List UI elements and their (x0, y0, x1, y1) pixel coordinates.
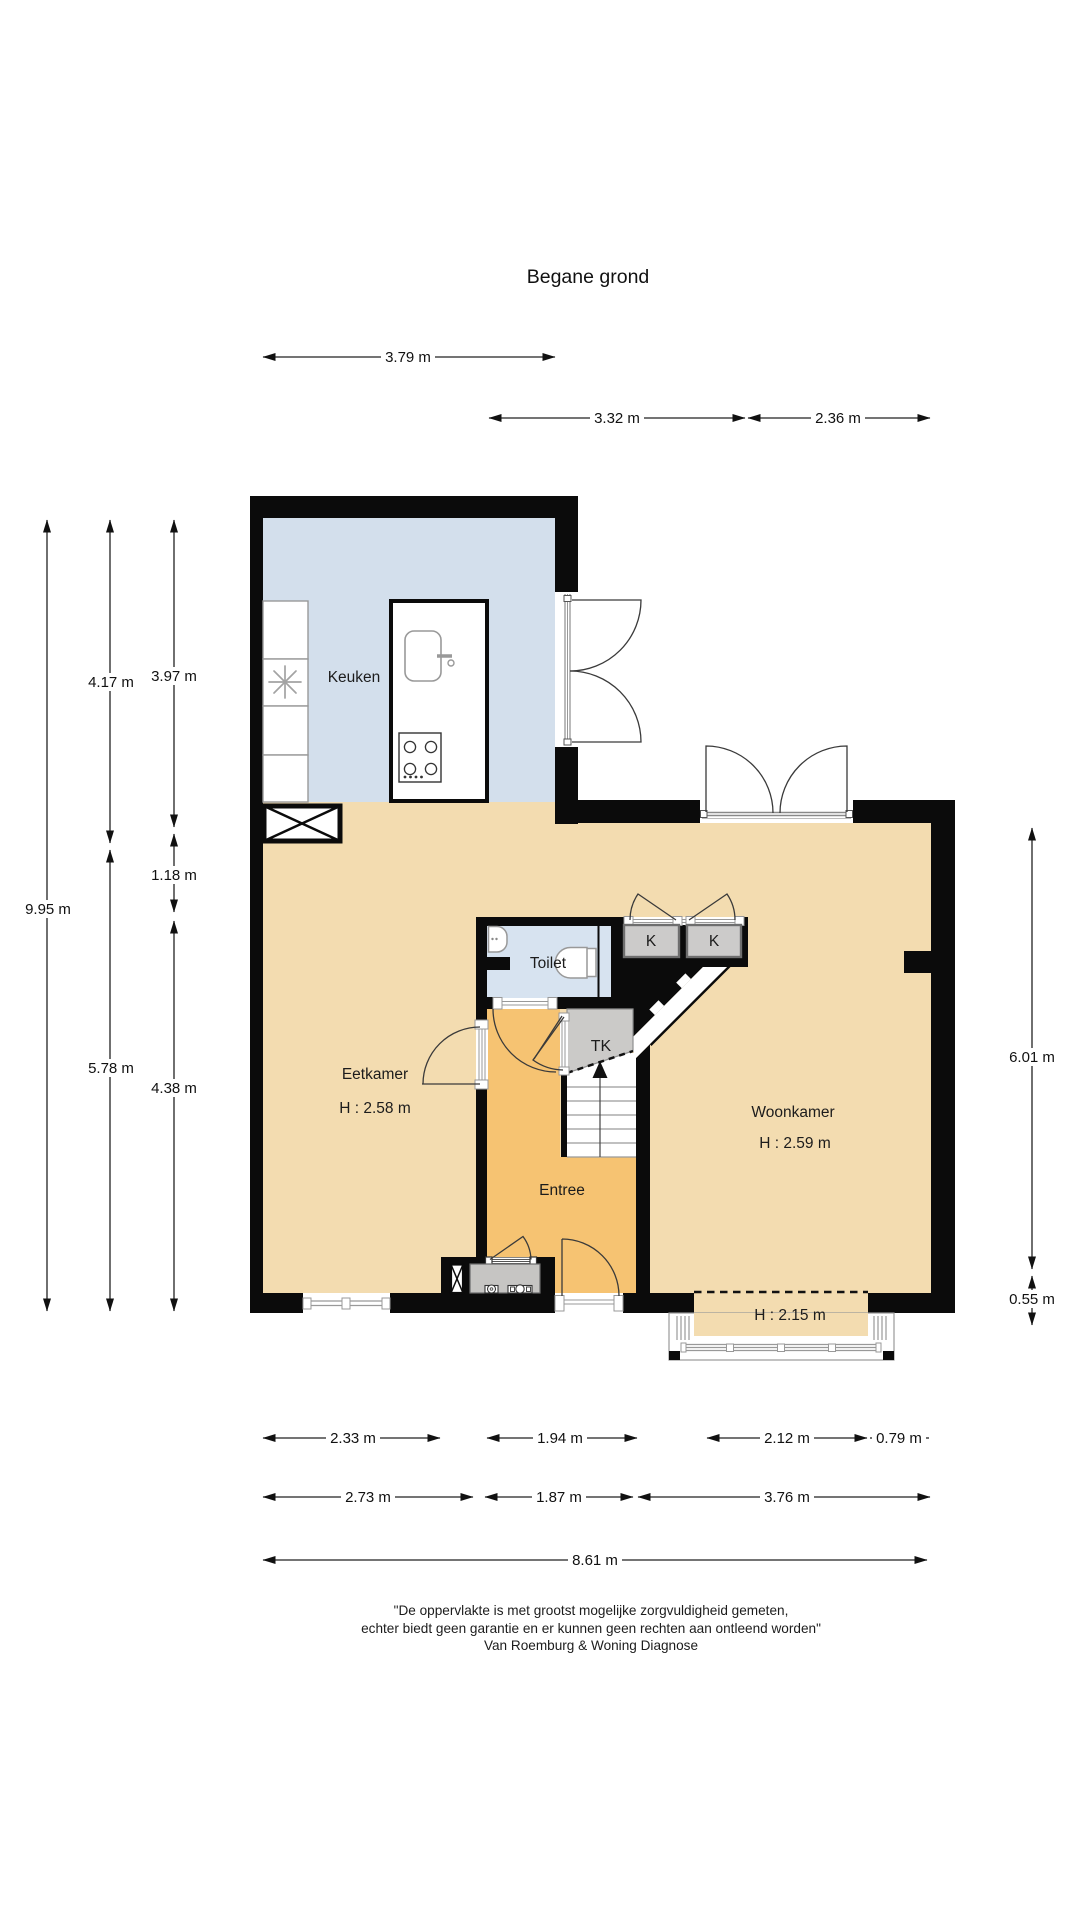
svg-text:echter biedt geen garantie en: echter biedt geen garantie en er kunnen … (361, 1621, 821, 1636)
svg-text:3.32 m: 3.32 m (594, 410, 640, 427)
svg-text:K: K (709, 933, 720, 950)
svg-text:K: K (646, 933, 657, 950)
svg-text:2.73 m: 2.73 m (345, 1489, 391, 1506)
svg-text:9.95 m: 9.95 m (25, 901, 71, 918)
svg-text:1.87 m: 1.87 m (536, 1489, 582, 1506)
svg-text:0.55 m: 0.55 m (1009, 1291, 1055, 1308)
svg-text:Woonkamer: Woonkamer (751, 1104, 834, 1121)
svg-text:Van Roemburg & Woning Diagnose: Van Roemburg & Woning Diagnose (484, 1638, 698, 1653)
svg-text:5.78 m: 5.78 m (88, 1060, 134, 1077)
svg-text:Keuken: Keuken (328, 669, 381, 686)
svg-text:3.79 m: 3.79 m (385, 349, 431, 366)
svg-text:2.33 m: 2.33 m (330, 1430, 376, 1447)
svg-text:6.01 m: 6.01 m (1009, 1049, 1055, 1066)
svg-text:1.18 m: 1.18 m (151, 867, 197, 884)
svg-text:"De oppervlakte is met grootst: "De oppervlakte is met grootst mogelijke… (394, 1603, 789, 1618)
svg-text:2.36 m: 2.36 m (815, 410, 861, 427)
svg-text:H : 2.58 m: H : 2.58 m (339, 1100, 411, 1117)
svg-text:3.97 m: 3.97 m (151, 668, 197, 685)
svg-text:Begane grond: Begane grond (527, 266, 650, 288)
svg-text:2.12 m: 2.12 m (764, 1430, 810, 1447)
svg-text:Entree: Entree (539, 1182, 585, 1199)
svg-text:8.61 m: 8.61 m (572, 1552, 618, 1569)
svg-text:Eetkamer: Eetkamer (342, 1066, 408, 1083)
svg-text:4.17 m: 4.17 m (88, 674, 134, 691)
svg-text:H : 2.15 m: H : 2.15 m (754, 1307, 826, 1324)
svg-text:1.94 m: 1.94 m (537, 1430, 583, 1447)
svg-text:H : 2.59 m: H : 2.59 m (759, 1135, 831, 1152)
svg-text:Toilet: Toilet (530, 955, 567, 972)
svg-text:0.79 m: 0.79 m (876, 1430, 922, 1447)
svg-text:4.38 m: 4.38 m (151, 1080, 197, 1097)
svg-text:TK: TK (591, 1038, 612, 1055)
svg-text:3.76 m: 3.76 m (764, 1489, 810, 1506)
